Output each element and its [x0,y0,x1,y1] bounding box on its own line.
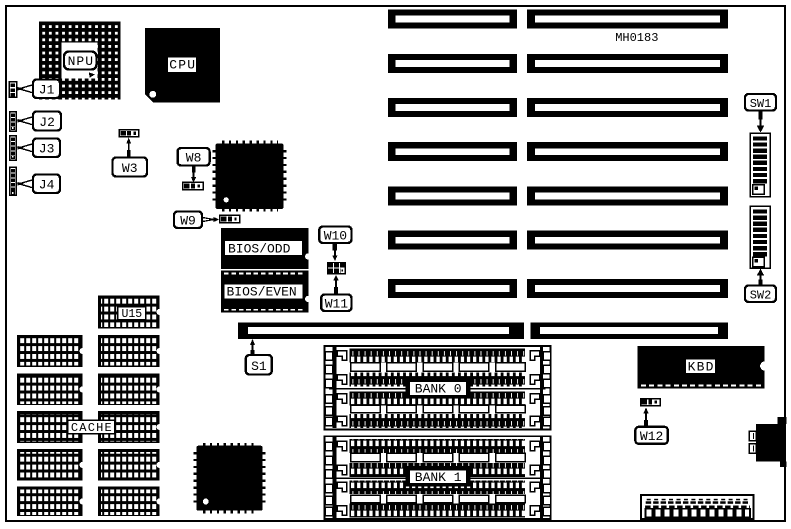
svg-text:BIOS/EVEN: BIOS/EVEN [227,285,297,300]
svg-text:S1: S1 [251,359,267,374]
svg-text:W8: W8 [186,150,202,165]
svg-text:BANK 0: BANK 0 [415,382,462,397]
svg-text:BIOS/ODD: BIOS/ODD [228,241,291,256]
svg-text:SW2: SW2 [750,288,772,302]
svg-text:KBD: KBD [688,360,715,375]
svg-text:J3: J3 [39,142,55,157]
svg-text:J4: J4 [39,178,55,193]
svg-text:U15: U15 [121,308,142,321]
svg-text:J2: J2 [39,115,55,130]
svg-text:SW1: SW1 [750,97,772,111]
svg-text:NPU: NPU [68,54,94,69]
svg-text:W12: W12 [640,429,663,444]
svg-text:W9: W9 [180,213,196,228]
svg-text:BANK 1: BANK 1 [415,470,462,485]
svg-text:W3: W3 [122,161,138,176]
svg-text:CPU: CPU [169,58,196,73]
svg-text:W10: W10 [324,228,347,243]
svg-text:MH0183: MH0183 [615,31,658,45]
svg-text:W11: W11 [325,296,349,311]
svg-text:J1: J1 [39,83,55,98]
svg-text:CACHE: CACHE [71,421,113,435]
